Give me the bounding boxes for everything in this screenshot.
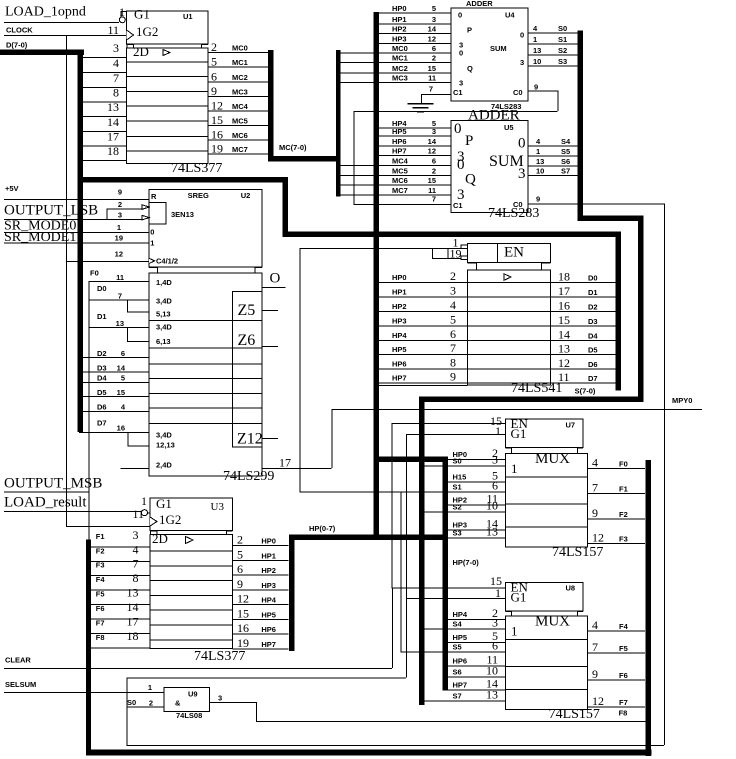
svg-text:HP5: HP5 [453, 633, 468, 642]
svg-text:17: 17 [558, 284, 570, 298]
svg-text:18: 18 [558, 270, 570, 284]
svg-text:12: 12 [428, 147, 436, 156]
svg-text:4: 4 [133, 542, 139, 556]
svg-text:F3: F3 [96, 561, 105, 570]
svg-text:19: 19 [211, 142, 223, 156]
svg-text:15: 15 [558, 313, 570, 327]
svg-text:1: 1 [533, 35, 537, 44]
svg-text:12: 12 [115, 250, 123, 259]
svg-text:13: 13 [486, 525, 498, 539]
svg-text:MC5: MC5 [232, 117, 248, 126]
svg-text:D3: D3 [588, 317, 598, 326]
svg-text:6: 6 [432, 44, 436, 53]
svg-text:MC6: MC6 [392, 176, 408, 185]
svg-text:F3: F3 [619, 535, 628, 544]
svg-text:D1: D1 [97, 312, 107, 321]
svg-text:D7: D7 [97, 419, 107, 428]
svg-text:3: 3 [133, 528, 139, 542]
svg-text:12: 12 [592, 694, 604, 708]
svg-text:7: 7 [450, 341, 456, 355]
svg-text:HP0: HP0 [261, 537, 276, 546]
svg-text:SUM: SUM [490, 44, 507, 53]
svg-text:HP3: HP3 [261, 581, 276, 590]
svg-text:4: 4 [592, 618, 598, 632]
svg-text:S5: S5 [561, 147, 570, 156]
svg-text:F7: F7 [96, 619, 105, 628]
svg-text:D0: D0 [588, 274, 598, 283]
svg-text:HP4: HP4 [392, 331, 407, 340]
svg-text:7: 7 [133, 557, 139, 571]
svg-text:7: 7 [429, 85, 433, 94]
svg-text:9: 9 [592, 667, 598, 681]
svg-text:HP0: HP0 [392, 273, 407, 282]
svg-text:MPY0: MPY0 [672, 396, 692, 405]
svg-text:F6: F6 [96, 604, 105, 613]
svg-text:3: 3 [218, 694, 222, 703]
svg-text:3: 3 [118, 211, 122, 220]
svg-text:3: 3 [518, 166, 526, 182]
svg-text:18: 18 [127, 629, 139, 643]
svg-text:4: 4 [592, 455, 598, 469]
svg-text:8: 8 [133, 571, 139, 585]
svg-text:0: 0 [520, 31, 524, 40]
svg-text:U1: U1 [183, 12, 193, 21]
svg-text:3,4D: 3,4D [156, 296, 172, 305]
svg-text:3: 3 [450, 283, 456, 297]
svg-text:D5: D5 [588, 346, 598, 355]
svg-text:1: 1 [495, 424, 501, 438]
svg-text:MC(7-0): MC(7-0) [279, 143, 307, 152]
svg-text:EN: EN [504, 245, 524, 261]
svg-text:D1: D1 [588, 288, 598, 297]
svg-text:74LS377: 74LS377 [171, 161, 222, 176]
svg-text:14: 14 [107, 115, 119, 129]
svg-text:F2: F2 [96, 546, 105, 555]
svg-text:6: 6 [492, 639, 498, 653]
svg-text:14: 14 [428, 25, 437, 34]
svg-text:3: 3 [113, 41, 119, 55]
svg-text:U7: U7 [566, 421, 576, 430]
svg-text:14: 14 [117, 364, 126, 373]
svg-text:CLOCK: CLOCK [6, 26, 33, 35]
svg-text:CLEAR: CLEAR [5, 656, 31, 665]
svg-text:10: 10 [536, 167, 544, 176]
svg-text:MC3: MC3 [392, 74, 408, 83]
svg-text:S3: S3 [453, 529, 462, 538]
svg-text:15: 15 [237, 606, 249, 620]
svg-text:1G2: 1G2 [159, 512, 181, 527]
svg-text:2: 2 [237, 533, 243, 547]
svg-text:S2: S2 [558, 46, 567, 55]
svg-text:17: 17 [127, 615, 139, 629]
svg-text:S7: S7 [453, 692, 462, 701]
svg-text:D2: D2 [97, 349, 107, 358]
svg-text:74LS283: 74LS283 [488, 206, 539, 221]
svg-text:HP5: HP5 [392, 345, 407, 354]
svg-text:9: 9 [592, 506, 598, 520]
svg-text:Z5: Z5 [238, 302, 256, 319]
svg-text:MC1: MC1 [232, 58, 248, 67]
svg-text:MC7: MC7 [232, 145, 248, 154]
svg-text:HP5: HP5 [392, 127, 407, 136]
svg-text:OUTPUT_LSB: OUTPUT_LSB [4, 203, 98, 219]
svg-text:S4: S4 [561, 137, 571, 146]
svg-text:F5: F5 [619, 644, 628, 653]
svg-text:0: 0 [458, 11, 462, 20]
svg-text:P: P [467, 26, 472, 35]
svg-text:HP(0-7): HP(0-7) [309, 524, 336, 533]
svg-text:MC3: MC3 [232, 88, 248, 97]
svg-text:74LS377: 74LS377 [194, 649, 245, 664]
svg-text:HP2: HP2 [392, 302, 407, 311]
svg-text:16: 16 [117, 424, 125, 433]
svg-text:MC4: MC4 [392, 157, 409, 166]
svg-text:74LS157: 74LS157 [552, 545, 603, 560]
svg-text:OUTPUT_MSB: OUTPUT_MSB [4, 476, 102, 492]
svg-text:F2: F2 [619, 510, 628, 519]
svg-text:Q: Q [467, 64, 473, 73]
svg-text:5: 5 [450, 312, 456, 326]
svg-text:11: 11 [132, 507, 144, 521]
svg-text:15: 15 [117, 388, 125, 397]
svg-text:1: 1 [511, 624, 518, 639]
svg-text:18: 18 [107, 144, 119, 158]
svg-text:HP7: HP7 [392, 147, 407, 156]
svg-text:MC7: MC7 [392, 186, 408, 195]
svg-text:1: 1 [148, 683, 152, 692]
svg-text:D6: D6 [588, 360, 598, 369]
svg-text:MC2: MC2 [392, 64, 408, 73]
svg-text:14: 14 [428, 137, 437, 146]
svg-text:Q: Q [465, 172, 476, 188]
svg-text:13: 13 [107, 100, 119, 114]
svg-text:F1: F1 [96, 532, 105, 541]
svg-text:D7: D7 [588, 374, 598, 383]
svg-text:SREG: SREG [188, 191, 209, 200]
svg-text:2: 2 [211, 40, 217, 54]
svg-text:2D: 2D [152, 531, 168, 546]
svg-text:7: 7 [118, 291, 122, 300]
svg-text:16: 16 [558, 298, 570, 312]
svg-text:U4: U4 [505, 11, 515, 20]
svg-text:9: 9 [536, 195, 540, 204]
svg-text:S(7-0): S(7-0) [575, 387, 596, 396]
svg-text:U9: U9 [188, 689, 198, 698]
svg-text:17: 17 [279, 456, 291, 470]
svg-text:0: 0 [454, 121, 462, 137]
svg-text:HP1: HP1 [392, 287, 407, 296]
svg-text:F1: F1 [619, 485, 628, 494]
svg-text:11: 11 [116, 273, 124, 282]
svg-text:4: 4 [450, 298, 456, 312]
svg-text:16: 16 [237, 621, 249, 635]
svg-text:11: 11 [107, 23, 119, 37]
svg-text:F8: F8 [619, 708, 628, 717]
svg-text:R: R [151, 192, 157, 201]
svg-text:HP2: HP2 [261, 566, 276, 575]
svg-text:0: 0 [150, 227, 154, 236]
svg-text:D5: D5 [97, 388, 107, 397]
svg-text:LOAD_1opnd: LOAD_1opnd [5, 5, 86, 20]
svg-text:MC6: MC6 [232, 131, 248, 140]
svg-text:G1: G1 [511, 426, 527, 441]
svg-text:HP3: HP3 [392, 316, 407, 325]
svg-text:3: 3 [459, 79, 463, 88]
svg-text:HP6: HP6 [261, 625, 276, 634]
svg-text:G1: G1 [134, 7, 150, 22]
svg-text:12: 12 [211, 99, 223, 113]
svg-text:6: 6 [492, 478, 498, 492]
svg-text:D4: D4 [97, 374, 107, 383]
svg-text:12,13: 12,13 [156, 441, 175, 450]
svg-text:5: 5 [121, 374, 125, 383]
svg-text:3: 3 [492, 615, 498, 629]
svg-text:12: 12 [558, 356, 570, 370]
svg-text:9: 9 [211, 84, 217, 98]
svg-text:12: 12 [237, 592, 249, 606]
svg-text:13: 13 [536, 157, 544, 166]
svg-text:2: 2 [118, 200, 122, 209]
svg-text:6: 6 [121, 349, 125, 358]
svg-text:F0: F0 [619, 459, 628, 468]
svg-text:2,4D: 2,4D [156, 461, 172, 470]
svg-text:ADDER: ADDER [466, 0, 493, 8]
svg-text:ADDER: ADDER [468, 108, 520, 124]
svg-text:74LS157: 74LS157 [549, 707, 600, 722]
svg-text:D4: D4 [588, 331, 598, 340]
svg-text:S0: S0 [558, 24, 567, 33]
svg-text:6: 6 [211, 70, 217, 84]
svg-text:&: & [175, 699, 181, 708]
svg-text:1G2: 1G2 [136, 24, 158, 39]
svg-text:MC1: MC1 [392, 54, 408, 63]
svg-text:MUX: MUX [535, 614, 570, 630]
svg-text:U3: U3 [211, 501, 225, 513]
svg-text:F5: F5 [96, 590, 105, 599]
svg-text:F4: F4 [619, 622, 629, 631]
svg-text:74LS299: 74LS299 [223, 469, 274, 484]
svg-text:O: O [270, 270, 281, 286]
svg-text:MC2: MC2 [232, 73, 248, 82]
svg-text:G1: G1 [156, 496, 172, 511]
svg-text:F6: F6 [619, 671, 628, 680]
svg-text:6: 6 [237, 562, 243, 576]
svg-text:10: 10 [486, 664, 498, 678]
svg-text:D2: D2 [588, 302, 598, 311]
svg-text:13: 13 [127, 586, 139, 600]
svg-text:S1: S1 [453, 482, 462, 491]
svg-text:12: 12 [428, 35, 436, 44]
svg-text:MUX: MUX [535, 451, 570, 467]
svg-text:5: 5 [432, 4, 436, 13]
svg-text:9: 9 [534, 83, 538, 92]
svg-text:1: 1 [141, 494, 147, 508]
svg-text:C1: C1 [453, 201, 463, 210]
svg-text:Z12: Z12 [237, 431, 263, 448]
svg-text:74LS08: 74LS08 [176, 711, 202, 720]
svg-text:7: 7 [113, 71, 119, 85]
svg-text:F4: F4 [96, 575, 106, 584]
svg-text:MC0: MC0 [392, 44, 408, 53]
svg-text:19: 19 [237, 636, 249, 650]
svg-text:HP7: HP7 [261, 640, 276, 649]
svg-text:MC0: MC0 [232, 44, 248, 53]
svg-text:7: 7 [592, 640, 598, 654]
svg-text:F7: F7 [619, 698, 628, 707]
svg-text:6: 6 [432, 157, 436, 166]
svg-text:10: 10 [533, 57, 541, 66]
svg-text:MC4: MC4 [232, 102, 249, 111]
svg-text:HP6: HP6 [453, 656, 468, 665]
svg-text:3,4D: 3,4D [156, 323, 172, 332]
svg-text:0: 0 [518, 136, 526, 152]
svg-text:D3: D3 [97, 364, 107, 373]
svg-text:2D: 2D [133, 44, 149, 59]
svg-text:H15: H15 [453, 472, 467, 481]
svg-text:2: 2 [149, 699, 153, 708]
svg-text:15: 15 [428, 64, 436, 73]
svg-text:LOAD_result: LOAD_result [4, 495, 87, 511]
svg-text:HP7: HP7 [453, 681, 468, 690]
svg-text:S7: S7 [561, 167, 570, 176]
svg-text:14: 14 [558, 327, 570, 341]
svg-text:P: P [465, 133, 473, 149]
svg-text:S6: S6 [453, 668, 462, 677]
svg-text:6: 6 [450, 327, 456, 341]
svg-text:HP7: HP7 [392, 374, 407, 383]
svg-text:HP0: HP0 [392, 4, 407, 13]
svg-text:1: 1 [117, 223, 121, 232]
svg-text:2: 2 [432, 167, 436, 176]
svg-text:10: 10 [486, 499, 498, 513]
svg-text:9: 9 [118, 188, 122, 197]
svg-text:SELSUM: SELSUM [5, 680, 36, 689]
svg-text:3: 3 [432, 15, 436, 24]
svg-text:HP1: HP1 [261, 551, 276, 560]
svg-text:13: 13 [116, 319, 124, 328]
svg-text:U8: U8 [566, 584, 576, 593]
svg-text:5: 5 [237, 547, 243, 561]
svg-text:F8: F8 [96, 633, 105, 642]
svg-text:C0: C0 [513, 88, 523, 97]
svg-text:D(7-0): D(7-0) [6, 41, 28, 50]
svg-text:9: 9 [450, 370, 456, 384]
svg-text:16: 16 [211, 128, 223, 142]
svg-text:3: 3 [520, 58, 524, 67]
svg-text:6,13: 6,13 [156, 337, 171, 346]
svg-text:S0: S0 [127, 698, 136, 707]
svg-text:11: 11 [428, 74, 436, 83]
svg-text:U5: U5 [504, 123, 514, 132]
svg-text:1,4D: 1,4D [156, 278, 172, 287]
svg-text:S3: S3 [558, 57, 567, 66]
svg-text:Z6: Z6 [238, 332, 256, 349]
svg-text:5,13: 5,13 [156, 310, 171, 319]
svg-text:2: 2 [450, 269, 456, 283]
svg-text:HP2: HP2 [392, 25, 407, 34]
svg-text:15: 15 [428, 176, 436, 185]
svg-text:13: 13 [533, 46, 541, 55]
svg-text:7: 7 [432, 195, 436, 204]
svg-text:HP4: HP4 [261, 596, 276, 605]
svg-text:C4/1/2: C4/1/2 [156, 256, 178, 265]
svg-text:3: 3 [492, 453, 498, 467]
svg-text:HP3: HP3 [392, 35, 407, 44]
svg-text:HP1: HP1 [392, 15, 407, 24]
svg-text:S6: S6 [561, 157, 570, 166]
svg-text:8: 8 [113, 86, 119, 100]
svg-text:S0: S0 [453, 457, 462, 466]
svg-text:HP6: HP6 [392, 137, 407, 146]
svg-text:1: 1 [536, 147, 540, 156]
svg-text:S4: S4 [453, 619, 463, 628]
svg-text:HP5: HP5 [261, 610, 276, 619]
svg-text:2: 2 [432, 54, 436, 63]
svg-text:13: 13 [558, 342, 570, 356]
svg-text:HP(7-0): HP(7-0) [453, 558, 480, 567]
svg-text:8: 8 [450, 356, 456, 370]
svg-text:0: 0 [457, 157, 465, 173]
svg-text:4: 4 [113, 56, 119, 70]
svg-text:1: 1 [511, 461, 518, 476]
svg-text:14: 14 [127, 600, 139, 614]
svg-text:19: 19 [115, 234, 123, 243]
svg-text:HP6: HP6 [392, 360, 407, 369]
svg-text:S1: S1 [558, 35, 567, 44]
svg-text:15: 15 [211, 113, 223, 127]
svg-text:HP4: HP4 [453, 610, 468, 619]
svg-text:3: 3 [432, 127, 436, 136]
svg-text:13: 13 [486, 688, 498, 702]
svg-text:F0: F0 [90, 268, 99, 277]
svg-text:5: 5 [211, 55, 217, 69]
svg-text:1: 1 [495, 586, 501, 600]
svg-text:9: 9 [237, 577, 243, 591]
svg-text:D6: D6 [97, 403, 107, 412]
svg-text:74LS541: 74LS541 [511, 381, 562, 396]
svg-text:MC5: MC5 [392, 167, 408, 176]
svg-text:S5: S5 [453, 643, 462, 652]
svg-text:3EN13: 3EN13 [171, 210, 194, 219]
svg-text:U2: U2 [241, 191, 251, 200]
svg-text:C1: C1 [453, 88, 463, 97]
svg-text:1: 1 [150, 239, 154, 248]
svg-text:S2: S2 [453, 503, 462, 512]
svg-text:G1: G1 [511, 590, 527, 605]
svg-text:+5V: +5V [5, 184, 19, 193]
svg-text:7: 7 [592, 481, 598, 495]
svg-text:0: 0 [459, 49, 463, 58]
svg-text:17: 17 [107, 130, 119, 144]
svg-text:3,4D: 3,4D [156, 430, 172, 439]
svg-text:D0: D0 [97, 284, 107, 293]
svg-text:12: 12 [592, 531, 604, 545]
